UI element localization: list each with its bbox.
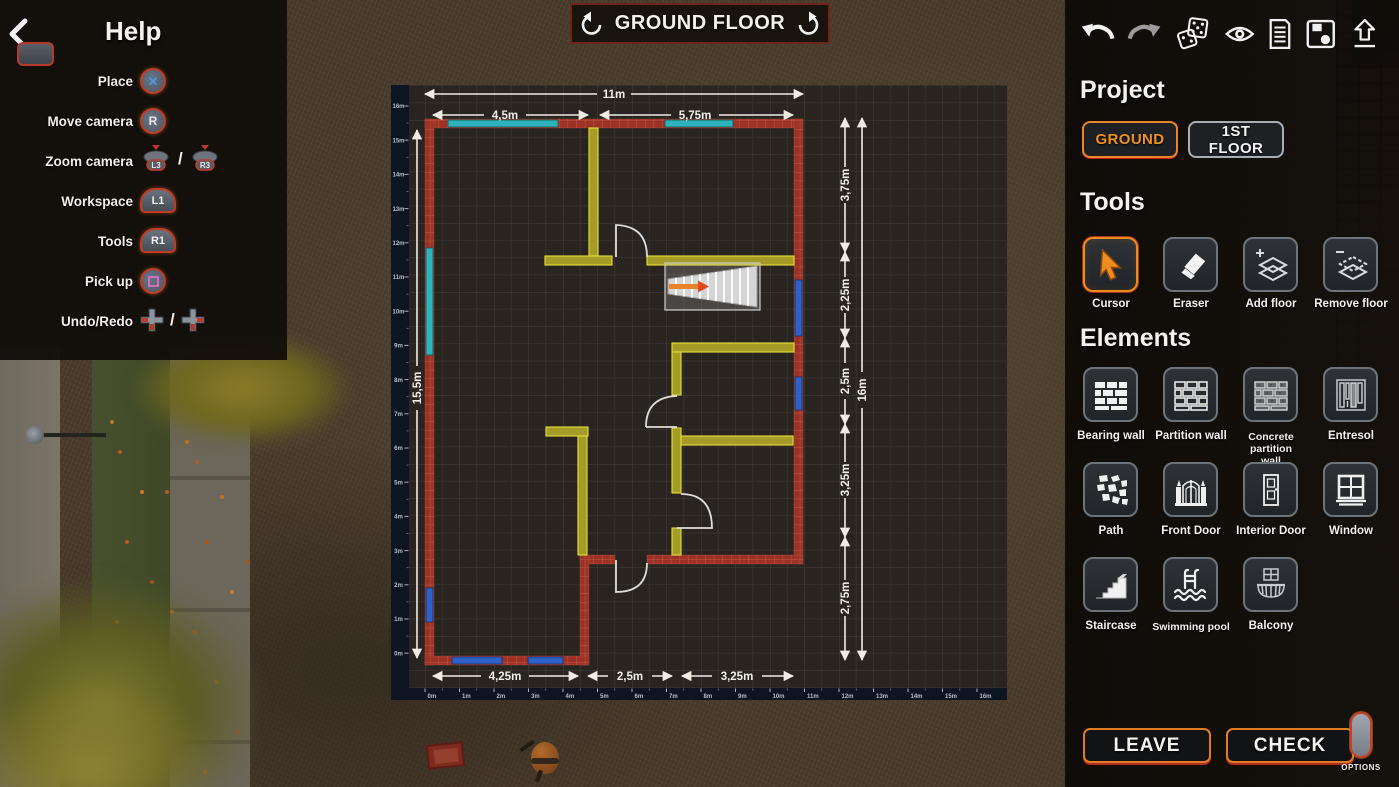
svg-text:3,25m: 3,25m <box>721 671 754 683</box>
element-label: Balcony <box>1225 620 1317 633</box>
tool-label: Eraser <box>1145 298 1237 311</box>
svg-text:L3: L3 <box>151 161 161 170</box>
floor-title: GROUND FLOOR <box>615 12 785 35</box>
svg-text:3,25m: 3,25m <box>840 464 852 497</box>
tool-cursor[interactable] <box>1083 237 1138 292</box>
svg-text:5m: 5m <box>600 694 609 700</box>
floor-plan-svg[interactable]: 16m15m14m13m12m11m10m9m8m7m6m5m4m3m2m1m0… <box>391 85 1007 700</box>
element-front-door[interactable] <box>1163 462 1218 517</box>
first-floor-button[interactable]: 1ST FLOOR <box>1188 121 1284 158</box>
right-stick-icon: R <box>140 108 166 134</box>
options-button-icon[interactable] <box>1350 712 1372 758</box>
element-window[interactable] <box>1323 462 1378 517</box>
element-partition-wall[interactable] <box>1163 367 1218 422</box>
svg-text:4m: 4m <box>566 694 575 700</box>
svg-text:10m: 10m <box>392 309 404 315</box>
svg-text:3,75m: 3,75m <box>840 169 852 202</box>
svg-text:0m: 0m <box>394 651 403 657</box>
svg-text:11m: 11m <box>393 275 405 281</box>
svg-text:3m: 3m <box>394 549 403 555</box>
tool-label: Add floor <box>1225 298 1317 311</box>
cursor-icon <box>1092 246 1130 284</box>
concrete-partition-wall-icon <box>1251 375 1291 415</box>
tool-add-floor[interactable] <box>1243 237 1298 292</box>
redo-icon[interactable] <box>1127 19 1162 49</box>
svg-text:13m: 13m <box>876 694 888 700</box>
element-staircase[interactable] <box>1083 557 1138 612</box>
svg-text:10m: 10m <box>773 694 785 700</box>
element-label: Staircase <box>1065 620 1157 633</box>
element-interior-door[interactable] <box>1243 462 1298 517</box>
l3-stick-icon: L3 <box>140 144 172 174</box>
help-panel: Help Place ✕ Move camera R Zoom camera L… <box>0 0 287 360</box>
staircase-symbol <box>665 263 760 310</box>
svg-text:2,5m: 2,5m <box>617 671 643 683</box>
svg-text:15m: 15m <box>945 694 957 700</box>
street-lamp-head <box>26 426 44 444</box>
eye-icon[interactable] <box>1224 22 1256 46</box>
blueprint-grid <box>409 85 1007 688</box>
svg-text:4m: 4m <box>394 515 403 521</box>
tool-label: Cursor <box>1065 298 1157 311</box>
cement-mixer <box>523 738 563 778</box>
svg-text:4,5m: 4,5m <box>492 110 518 122</box>
entresol-icon <box>1331 375 1371 415</box>
svg-text:4,25m: 4,25m <box>489 671 522 683</box>
svg-text:0m: 0m <box>428 694 437 700</box>
svg-text:8m: 8m <box>394 378 403 384</box>
svg-text:5m: 5m <box>394 480 403 486</box>
touchpad-icon[interactable] <box>17 42 54 66</box>
l1-button-icon: L1 <box>140 188 176 213</box>
remove-floor-icon <box>1331 245 1371 285</box>
tool-eraser[interactable] <box>1163 237 1218 292</box>
cross-button-icon: ✕ <box>140 68 166 94</box>
rotate-cw-icon[interactable] <box>795 11 821 37</box>
element-entresol[interactable] <box>1323 367 1378 422</box>
dice-icon[interactable] <box>1174 14 1211 54</box>
svg-text:9m: 9m <box>738 694 747 700</box>
ground-floor-button[interactable]: GROUND <box>1082 121 1178 158</box>
floor-header: GROUND FLOOR <box>570 3 830 44</box>
svg-text:15,5m: 15,5m <box>412 372 424 405</box>
interior-door-icon <box>1251 470 1291 510</box>
eraser-icon <box>1172 246 1210 284</box>
element-bearing-wall[interactable] <box>1083 367 1138 422</box>
path-icon <box>1091 470 1131 510</box>
svg-text:16m: 16m <box>857 378 869 401</box>
notes-icon[interactable] <box>1267 17 1293 51</box>
svg-text:R3: R3 <box>200 161 211 170</box>
element-label: Entresol <box>1305 430 1397 443</box>
help-title: Help <box>105 16 161 47</box>
street-lamp-arm <box>40 433 106 437</box>
r1-button-icon: R1 <box>140 228 176 253</box>
svg-text:2,25m: 2,25m <box>840 279 852 312</box>
balcony-icon <box>1251 565 1291 605</box>
app-window: 16m15m14m13m12m11m10m9m8m7m6m5m4m3m2m1m0… <box>0 0 1399 787</box>
dpad-left-icon <box>140 308 164 332</box>
element-label: Swimming pool <box>1145 621 1237 633</box>
undo-icon[interactable] <box>1080 19 1115 49</box>
svg-text:12m: 12m <box>842 694 854 700</box>
svg-text:16m: 16m <box>980 694 992 700</box>
options-label: OPTIONS <box>1336 763 1386 772</box>
wheelbarrow <box>426 741 465 770</box>
element-balcony[interactable] <box>1243 557 1298 612</box>
element-label: Front Door <box>1145 525 1237 538</box>
element-swimming-pool[interactable] <box>1163 557 1218 612</box>
svg-text:7m: 7m <box>669 694 678 700</box>
r3-stick-icon: R3 <box>189 144 221 174</box>
svg-text:14m: 14m <box>392 173 404 179</box>
svg-text:15m: 15m <box>392 138 404 144</box>
svg-text:2,5m: 2,5m <box>840 368 852 394</box>
leave-button[interactable]: LEAVE <box>1083 728 1211 763</box>
swimming-pool-icon <box>1171 565 1211 605</box>
export-icon[interactable] <box>1349 16 1381 52</box>
svg-text:2m: 2m <box>497 694 506 700</box>
partition-wall-icon <box>1171 375 1211 415</box>
svg-text:9m: 9m <box>394 344 403 350</box>
element-label: Path <box>1065 525 1157 538</box>
svg-text:11m: 11m <box>603 89 625 101</box>
topbar-icon-row <box>1080 12 1380 56</box>
svg-text:5,75m: 5,75m <box>679 110 712 122</box>
bearing-wall-icon <box>1091 375 1131 415</box>
svg-text:6m: 6m <box>394 446 403 452</box>
rotate-ccw-icon[interactable] <box>579 11 605 37</box>
svg-text:7m: 7m <box>394 412 403 418</box>
front-door-icon <box>1171 470 1211 510</box>
svg-text:1m: 1m <box>394 617 403 623</box>
dpad-right-icon <box>181 308 205 332</box>
square-button-icon <box>140 268 166 294</box>
tools-heading: Tools <box>1080 188 1145 217</box>
tool-remove-floor[interactable] <box>1323 237 1378 292</box>
svg-text:2,75m: 2,75m <box>840 582 852 615</box>
elements-heading: Elements <box>1080 324 1191 353</box>
svg-text:14m: 14m <box>911 694 923 700</box>
svg-text:11m: 11m <box>807 694 819 700</box>
svg-text:8m: 8m <box>704 694 713 700</box>
staircase-icon <box>1091 565 1131 605</box>
save-icon[interactable] <box>1305 17 1337 51</box>
element-path[interactable] <box>1083 462 1138 517</box>
window-icon <box>1331 470 1371 510</box>
svg-text:1m: 1m <box>462 694 471 700</box>
svg-text:2m: 2m <box>394 583 403 589</box>
element-label: Partition wall <box>1145 430 1237 443</box>
project-heading: Project <box>1080 76 1165 105</box>
element-concrete-partition-wall[interactable] <box>1243 367 1298 422</box>
svg-text:6m: 6m <box>635 694 644 700</box>
svg-text:16m: 16m <box>392 104 404 110</box>
svg-text:3m: 3m <box>531 694 540 700</box>
element-label: Window <box>1305 525 1397 538</box>
check-button[interactable]: CHECK <box>1226 728 1354 763</box>
svg-text:12m: 12m <box>392 241 404 247</box>
add-floor-icon <box>1251 245 1291 285</box>
element-label: Bearing wall <box>1065 430 1157 443</box>
element-label: Interior Door <box>1225 525 1317 538</box>
tool-label: Remove floor <box>1305 298 1397 311</box>
svg-text:13m: 13m <box>392 207 404 213</box>
